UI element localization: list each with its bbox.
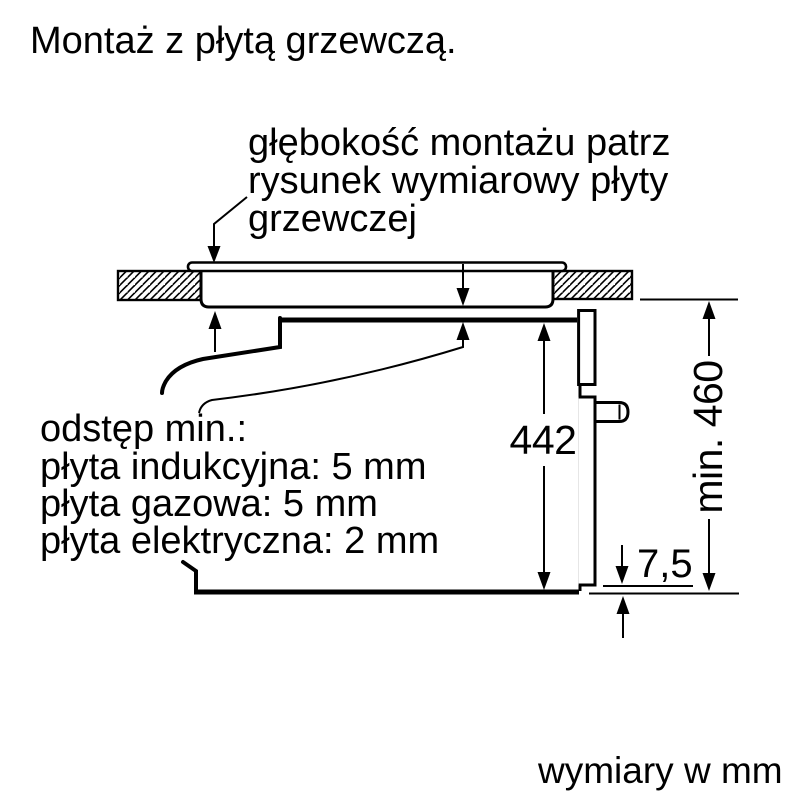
annotation-line-3: grzewczej: [248, 198, 417, 240]
clearance-line-2: płyta indukcyjna: 5 mm: [40, 446, 427, 488]
clearance-note: odstęp min.: płyta indukcyjna: 5 mm płyt…: [40, 408, 439, 562]
hob-depth-annotation: głębokość montażu patrz rysunek wymiarow…: [208, 122, 671, 263]
worktop-left-section: [118, 271, 201, 300]
clearance-leader-line: [199, 336, 463, 413]
dimension-min-460-value: min. 460: [685, 360, 731, 513]
dim-460-arrowhead-down: [703, 573, 716, 591]
hob: [188, 263, 566, 308]
oven-door-profile: [579, 397, 595, 585]
page-title: Montaż z płytą grzewczą.: [30, 20, 457, 62]
oven-control-panel-profile: [579, 311, 595, 385]
dimension-oven-height: 442: [510, 323, 577, 590]
annotation-line-1: głębokość montażu patrz: [248, 122, 670, 164]
hob-top-panel: [188, 263, 566, 272]
dimension-bottom-offset: 7,5: [603, 542, 693, 638]
dim-442-arrowhead-down: [538, 572, 551, 590]
oven-handle-knob: [595, 403, 628, 422]
clearance-line-3: płyta gazowa: 5 mm: [40, 483, 378, 525]
dimension-7-5-value: 7,5: [637, 542, 693, 586]
annotation-arrowhead-down: [208, 246, 221, 263]
dim-75-arrowhead-down: [616, 566, 629, 584]
installation-diagram-page: Montaż z płytą grzewczą. głębokość monta…: [0, 0, 800, 800]
annotation-line-2: rysunek wymiarowy płyty: [248, 160, 668, 202]
clearance-line-4: płyta elektryczna: 2 mm: [40, 520, 439, 562]
dim-75-arrowhead-up: [617, 596, 630, 614]
worktop-right-section: [553, 271, 632, 299]
clearance-line-1: odstęp min.:: [40, 408, 247, 450]
annotation-leader-line: [214, 197, 247, 248]
oven-bottom-break-hook: [183, 562, 196, 590]
units-note: wymiary w mm: [537, 750, 783, 791]
oven-front: [579, 309, 628, 591]
oven-top-break-line: [162, 318, 280, 393]
dimension-442-value: 442: [510, 417, 577, 463]
diagram-canvas: Montaż z płytą grzewczą. głębokość monta…: [0, 0, 800, 800]
